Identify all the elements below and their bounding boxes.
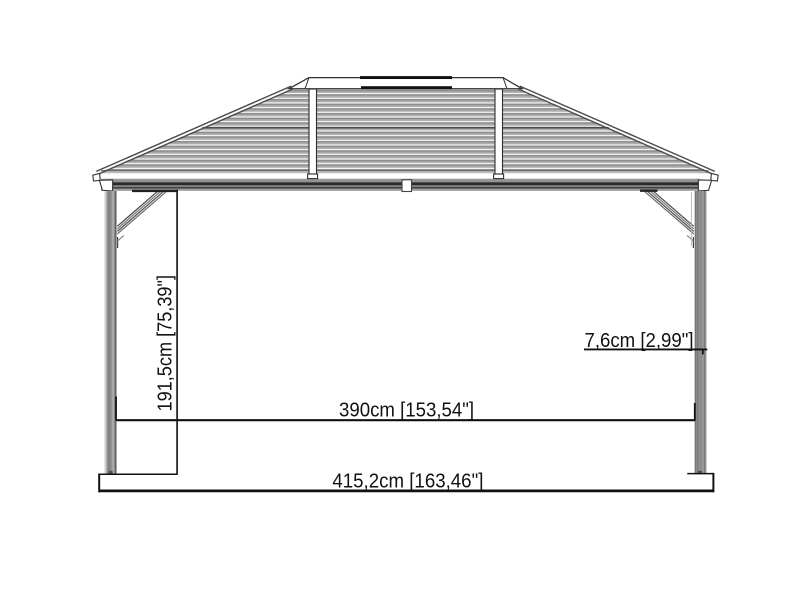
svg-text:191,5cm [75,39"]: 191,5cm [75,39"] xyxy=(155,275,177,412)
svg-text:415,2cm [163,46"]: 415,2cm [163,46"] xyxy=(332,470,483,492)
svg-text:7,6cm [2,99"]: 7,6cm [2,99"] xyxy=(585,330,694,352)
svg-text:390cm [153,54"]: 390cm [153,54"] xyxy=(339,399,474,421)
